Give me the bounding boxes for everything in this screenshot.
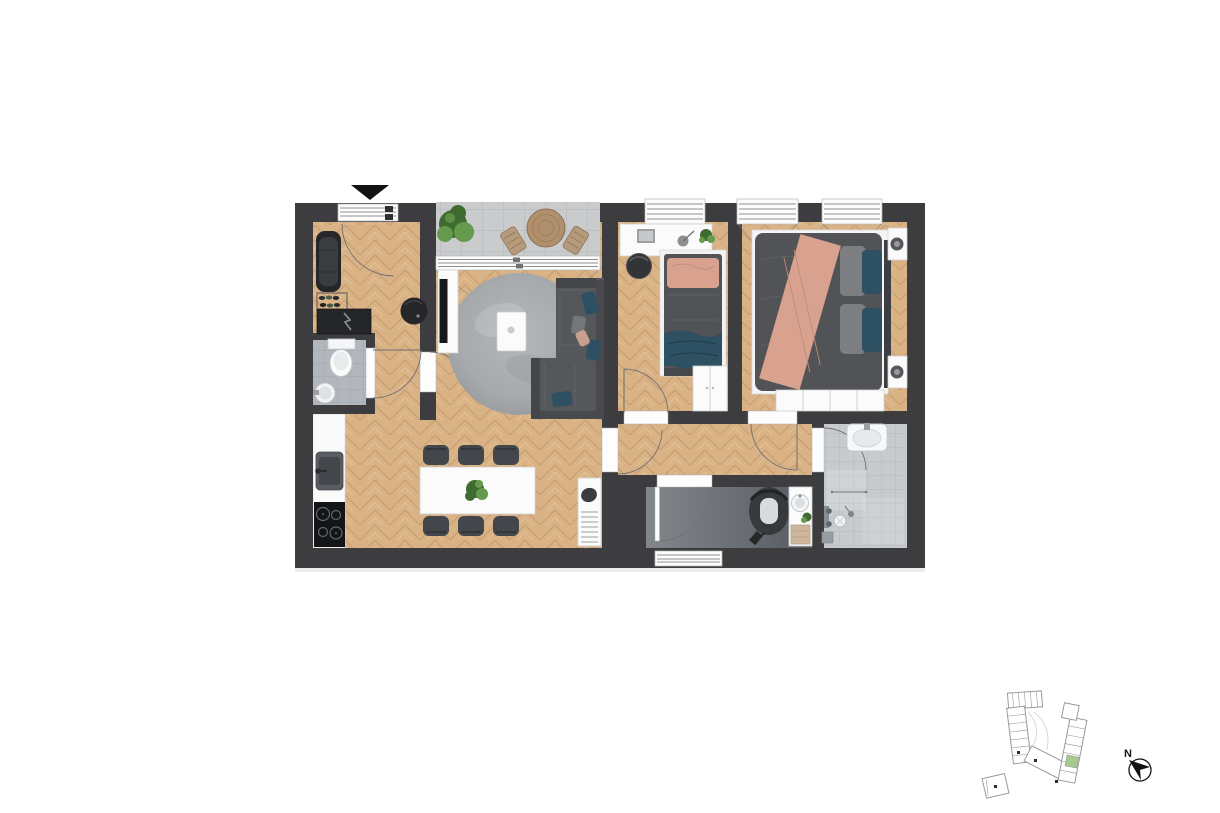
door-small-bedroom — [624, 411, 668, 424]
plan-shadow — [295, 568, 925, 572]
master-bedroom-furniture — [752, 228, 907, 411]
door-utility — [657, 475, 712, 487]
wardrobe — [693, 366, 727, 411]
dining-chair — [493, 516, 519, 536]
tv — [440, 279, 448, 343]
window-master-2 — [822, 199, 882, 224]
wardrobe-bench — [316, 231, 341, 292]
door-wc — [366, 348, 375, 398]
window-small-bedroom — [645, 199, 705, 224]
compass-north-label: N — [1124, 748, 1132, 760]
wardrobe — [776, 390, 884, 411]
main-building-outline — [1007, 691, 1087, 783]
entrance-door — [338, 204, 398, 221]
site-key-plan: N — [970, 680, 1170, 805]
double-bed — [752, 230, 891, 394]
bed-pillow — [862, 250, 882, 294]
dining-chair — [458, 445, 484, 465]
floor-drain — [834, 515, 846, 527]
sofa-cushion — [551, 391, 573, 408]
electrical-cabinet — [317, 309, 371, 334]
sliding-door — [436, 256, 600, 270]
kitchen-sink — [315, 452, 343, 490]
tile-highlight — [862, 498, 904, 544]
washbasin-cabinet — [789, 487, 812, 546]
bistro-table — [527, 209, 565, 247]
stair-dot — [1034, 759, 1037, 762]
nightstand — [888, 228, 907, 260]
dining-chair — [458, 516, 484, 536]
bed-blanket — [664, 331, 722, 372]
highlighted-unit — [1065, 755, 1079, 768]
floor-hallway — [618, 424, 812, 475]
window-utility — [655, 551, 722, 566]
bath-mat — [822, 532, 833, 543]
door-master-bedroom — [748, 411, 797, 424]
floor-plan — [290, 180, 930, 575]
tv-sideboard — [438, 270, 458, 353]
slatted-cabinet — [578, 478, 601, 546]
cooktop — [314, 502, 345, 547]
north-compass: N — [1124, 748, 1151, 781]
nightstand — [888, 356, 907, 388]
bed-pillow — [862, 308, 882, 352]
bed-pillow — [667, 258, 719, 288]
stool — [627, 254, 652, 279]
stair-dot — [1017, 751, 1020, 754]
door-living-hallway — [602, 428, 618, 472]
washbasin — [847, 423, 887, 451]
utility-door-leaf — [655, 487, 660, 541]
pouf — [401, 298, 428, 325]
dining-chair — [423, 516, 449, 536]
entrance-triangle-icon — [351, 185, 389, 200]
door-bathroom — [812, 428, 824, 472]
page: { "canvas": {"width": 1220, "height": 81… — [0, 0, 1220, 813]
window-master-1 — [737, 199, 798, 224]
stair-dot — [1055, 780, 1058, 783]
tile-highlight — [826, 470, 866, 510]
annex-building-outline — [982, 774, 1009, 799]
dining-chair — [493, 445, 519, 465]
single-bed — [660, 250, 726, 376]
door-hall-living — [420, 352, 436, 392]
stair-dot — [994, 785, 997, 788]
coffee-table — [497, 312, 526, 351]
storage-box — [791, 525, 810, 544]
dining-chair — [423, 445, 449, 465]
